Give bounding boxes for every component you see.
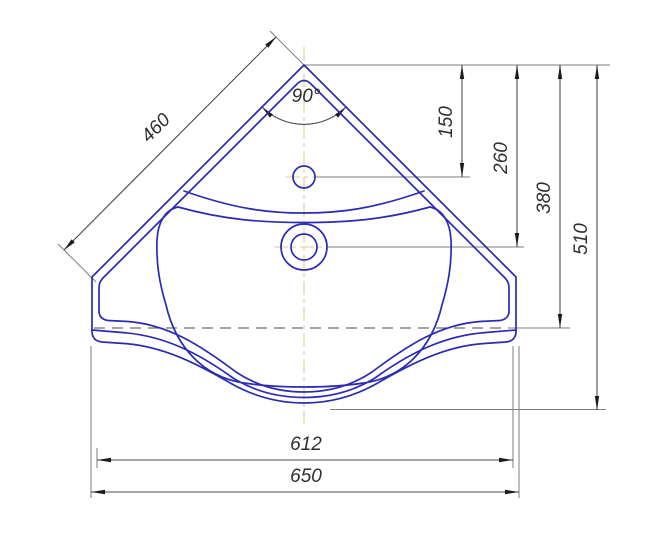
arrowhead [265,37,276,48]
arrowhead [558,65,562,79]
arrowhead [499,458,513,462]
dim-label-corner-angle: 90° [292,86,321,107]
dim-label-faucet-offset: 150 [436,106,457,138]
technical-drawing-canvas: 460 90° 150 260 380 510 612 650 [0,0,654,542]
arrowhead [515,65,519,79]
dim-label-overall-width: 650 [290,466,322,487]
arrowhead [595,65,599,79]
dim-line-460 [64,37,276,250]
arrowhead [460,163,464,177]
arrowhead [64,239,75,250]
dim-label-drain-offset: 260 [491,142,512,175]
dim-label-waterline-offset: 380 [534,182,555,214]
dimension-lines [64,37,597,492]
dim-label-inner-width: 612 [290,434,322,455]
arrowhead [595,396,599,410]
corner-washbasin-drawing: 460 90° 150 260 380 510 612 650 [0,0,654,542]
arrowhead [460,65,464,79]
extension-lines [58,31,610,498]
arrowhead [515,233,519,247]
arrowhead [505,490,519,494]
arrowhead [91,490,105,494]
dim-label-overall-depth: 510 [571,223,592,255]
arrowhead [97,458,111,462]
dimension-labels: 460 90° 150 260 380 510 612 650 [137,86,592,487]
arrowhead [558,314,562,328]
dim-label-edge-length: 460 [137,109,175,147]
